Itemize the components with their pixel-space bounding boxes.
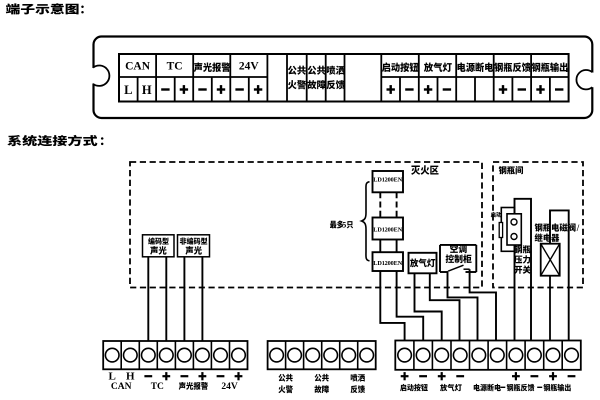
svg-text:CAN: CAN [111,382,132,392]
svg-text:24V: 24V [239,61,260,73]
svg-text:LD1200EN: LD1200EN [373,227,402,234]
svg-text:5: 5 [342,221,346,230]
svg-text:LD1200EN: LD1200EN [373,177,402,184]
svg-text:H: H [126,371,135,383]
svg-text:TC: TC [167,61,183,73]
svg-text:CAN: CAN [125,61,151,73]
svg-text:/: / [576,223,580,233]
svg-text:LD1200EN: LD1200EN [373,260,402,267]
svg-text:TC: TC [151,382,164,392]
svg-text:L: L [109,371,116,383]
svg-text:24V: 24V [221,382,238,392]
svg-text:L: L [124,83,132,97]
svg-text:H: H [142,83,152,97]
